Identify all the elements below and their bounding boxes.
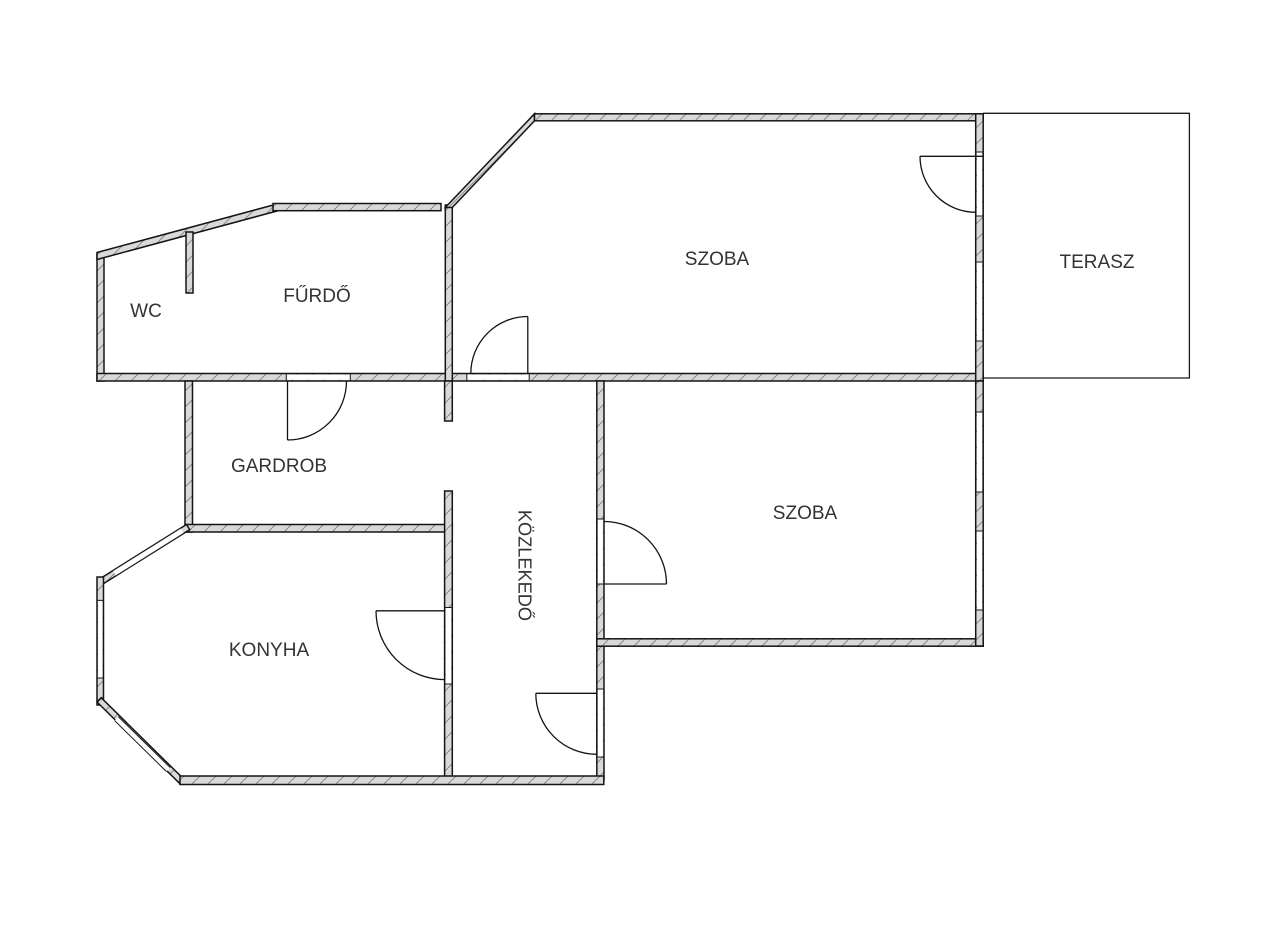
svg-text:SZOBA: SZOBA	[685, 249, 750, 270]
svg-text:FŰRDŐ: FŰRDŐ	[283, 285, 351, 307]
svg-text:SZOBA: SZOBA	[773, 503, 838, 524]
svg-text:KONYHA: KONYHA	[229, 640, 310, 661]
svg-text:GARDROB: GARDROB	[231, 456, 327, 477]
svg-text:WC: WC	[130, 301, 162, 322]
svg-text:TERASZ: TERASZ	[1060, 252, 1135, 273]
svg-text:KÖZLEKEDŐ: KÖZLEKEDŐ	[515, 510, 536, 621]
